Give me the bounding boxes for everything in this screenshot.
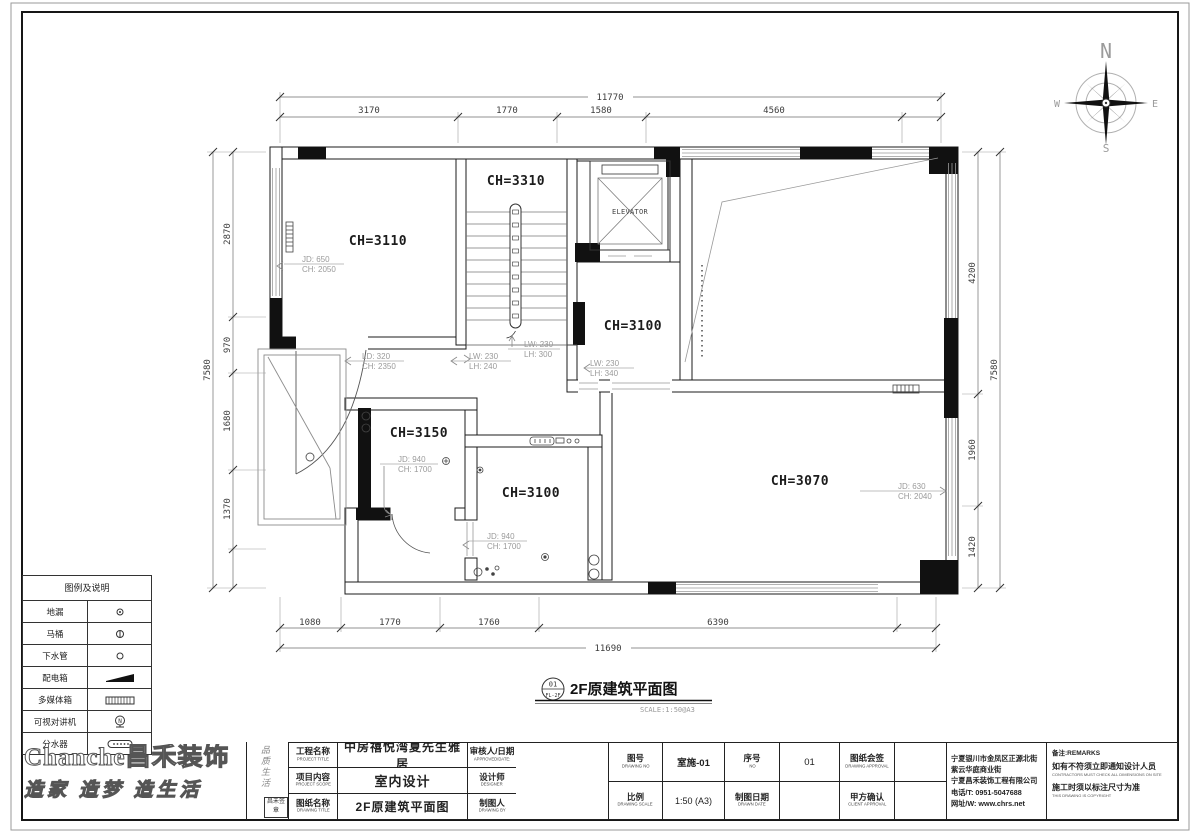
company-logo: Chanche昌禾装饰 造家 造梦 造生活	[24, 744, 246, 818]
svg-text:LW: 230: LW: 230	[524, 340, 554, 349]
scale-value: 1:50 (A3)	[662, 781, 725, 820]
svg-text:970: 970	[223, 337, 233, 353]
drawing-title-label: 图纸名称DRAWING TITLE	[288, 793, 338, 820]
client-value	[894, 781, 947, 820]
client-label: 甲方确认CLIENT APPROVAL	[839, 781, 895, 820]
svg-text:LH: 240: LH: 240	[469, 362, 498, 371]
svg-text:7580: 7580	[990, 359, 1000, 381]
drawing-caption: 01 FL-2F 2F原建筑平面图 SCALE:1:50@A3	[535, 678, 712, 714]
staircase	[466, 204, 577, 345]
svg-text:11770: 11770	[596, 93, 623, 103]
svg-text:FL-2F: FL-2F	[545, 693, 560, 699]
designer-label: 设计师DESIGNER	[467, 767, 517, 794]
svg-text:CH=3100: CH=3100	[604, 319, 662, 334]
multimedia-box-symbol	[286, 222, 293, 252]
svg-text:1770: 1770	[379, 618, 401, 628]
svg-text:JD: 940: JD: 940	[487, 532, 515, 541]
legend-title: 图例及说明	[23, 576, 151, 601]
svg-text:1420: 1420	[968, 536, 978, 558]
annotation-lw240: LW: 230 LH: 240	[451, 352, 511, 371]
company-seal: 昌禾签章	[264, 797, 288, 818]
svg-text:CH: 2040: CH: 2040	[898, 492, 932, 501]
drawing-title-value: 2F原建筑平面图	[337, 793, 468, 820]
svg-text:1680: 1680	[223, 410, 233, 432]
legend-row: 马桶	[23, 623, 151, 645]
svg-text:4200: 4200	[968, 262, 978, 284]
approval-label: 图纸会签DRAWING APPROVAL	[839, 742, 895, 782]
svg-text:LD: 320: LD: 320	[362, 352, 391, 361]
annotation-jd650: JD: 650 CH: 2050	[277, 255, 344, 274]
svg-text:LW: 230: LW: 230	[590, 359, 620, 368]
logo-text: Chanche昌禾装饰	[24, 744, 246, 772]
svg-text:CH: 2350: CH: 2350	[362, 362, 396, 371]
remarks: 备注:REMARKS 如有不符须立即通知设计人员 CONTRACTORS MUS…	[1046, 742, 1178, 820]
svg-text:1960: 1960	[968, 439, 978, 461]
ceiling-slope-line	[685, 158, 938, 362]
svg-text:6390: 6390	[707, 618, 729, 628]
legend-row: 下水管	[23, 645, 151, 667]
elevator-label: ELEVATOR	[612, 208, 649, 216]
scale-label: 比例DRAWING SCALE	[608, 781, 663, 820]
annotation-jd630: JD: 630 CH: 2040	[860, 482, 946, 501]
svg-text:CH: 2050: CH: 2050	[302, 265, 336, 274]
compass: N W E S	[1054, 39, 1158, 155]
scope-label: 项目内容PROJECT SCOPE	[288, 767, 338, 794]
project-title-value: 中房禧悦湾夏先生雅居	[337, 742, 468, 768]
svg-text:1770: 1770	[496, 106, 518, 116]
drawnby-label: 制图人DRAWING BY	[467, 793, 517, 820]
svg-text:JD: 650: JD: 650	[302, 255, 330, 264]
elevator: ELEVATOR	[590, 161, 670, 250]
drawing-sheet: ELEVATOR CH=3310 CH=3110 CH=3100 CH=315	[0, 0, 1200, 833]
annotation-lw340: LW: 230 LH: 340	[584, 359, 634, 378]
svg-text:CH=3100: CH=3100	[502, 486, 560, 501]
video-intercom-icon: N	[88, 711, 151, 732]
floor-drain-icon	[88, 601, 151, 622]
svg-text:CH: 1700: CH: 1700	[487, 542, 521, 551]
legend-row: 配电箱	[23, 667, 151, 689]
logo-slogan: 造家 造梦 造生活	[24, 775, 246, 802]
svg-text:LW: 230: LW: 230	[469, 352, 499, 361]
scope-value: 室内设计	[337, 767, 468, 794]
seq-label: 序号NO	[724, 742, 780, 782]
compass-s: S	[1103, 142, 1110, 155]
svg-text:4560: 4560	[763, 106, 785, 116]
svg-text:7580: 7580	[203, 359, 213, 381]
drain-pipe-symbol	[306, 453, 314, 461]
svg-text:CH=3310: CH=3310	[487, 174, 545, 189]
svg-text:2870: 2870	[223, 223, 233, 245]
seq-value: 01	[779, 742, 840, 782]
multimedia-box-icon	[88, 689, 151, 710]
toilet-icon	[88, 623, 151, 644]
compass-n: N	[1100, 39, 1112, 63]
date-value	[779, 781, 840, 820]
svg-text:3170: 3170	[358, 106, 380, 116]
drain-pipe-icon	[88, 645, 151, 666]
svg-text:JD: 940: JD: 940	[398, 455, 426, 464]
svg-text:11690: 11690	[594, 644, 621, 654]
svg-text:JD: 630: JD: 630	[898, 482, 926, 491]
drawing-no-label: 图号DRAWING NO	[608, 742, 663, 782]
svg-text:CH=3150: CH=3150	[390, 426, 448, 441]
svg-text:LH: 340: LH: 340	[590, 369, 619, 378]
legend-row: 地漏	[23, 601, 151, 623]
svg-text:1760: 1760	[478, 618, 500, 628]
legend-row: 可视对讲机 N	[23, 711, 151, 733]
svg-text:CH=3070: CH=3070	[771, 474, 829, 489]
annotation-lw300: LW: 230 LH: 300	[508, 336, 560, 359]
svg-text:2F原建筑平面图: 2F原建筑平面图	[570, 680, 678, 698]
svg-text:SCALE:1:50@A3: SCALE:1:50@A3	[640, 706, 695, 714]
side-script: 品质生活	[259, 745, 272, 789]
project-title-label: 工程名称PROJECT TITLE	[288, 742, 338, 768]
svg-text:N: N	[118, 718, 122, 725]
legend-row: 多媒体箱	[23, 689, 151, 711]
approved-label: 审核人/日期APPROVED/DATE:	[467, 742, 517, 768]
drawing-no-value: 室施-01	[662, 742, 725, 782]
bay-window	[258, 349, 346, 525]
floor-plan: ELEVATOR CH=3310 CH=3110 CH=3100 CH=315	[0, 0, 1200, 833]
svg-text:CH=3110: CH=3110	[349, 234, 407, 249]
company-info: 宁夏银川市金凤区正源北街 紫云华庭商业街 宁夏昌禾装饰工程有限公司 电话/T: …	[946, 742, 1047, 820]
svg-text:1580: 1580	[590, 106, 612, 116]
compass-w: W	[1054, 99, 1061, 110]
power-box-icon	[88, 667, 151, 688]
svg-text:1370: 1370	[223, 498, 233, 520]
svg-text:1080: 1080	[299, 618, 321, 628]
signature-cell	[516, 742, 609, 820]
svg-text:LH: 300: LH: 300	[524, 350, 553, 359]
svg-text:CH: 1700: CH: 1700	[398, 465, 432, 474]
approval-value	[894, 742, 947, 782]
legend-table: 图例及说明 地漏 马桶 下水管 配电箱 多媒体箱 可视对讲机 N 分水器	[22, 575, 152, 755]
compass-e: E	[1152, 99, 1158, 110]
svg-text:01: 01	[549, 681, 557, 689]
date-label: 制图日期DRAWN DATE	[724, 781, 780, 820]
toilet-symbol	[443, 458, 450, 465]
